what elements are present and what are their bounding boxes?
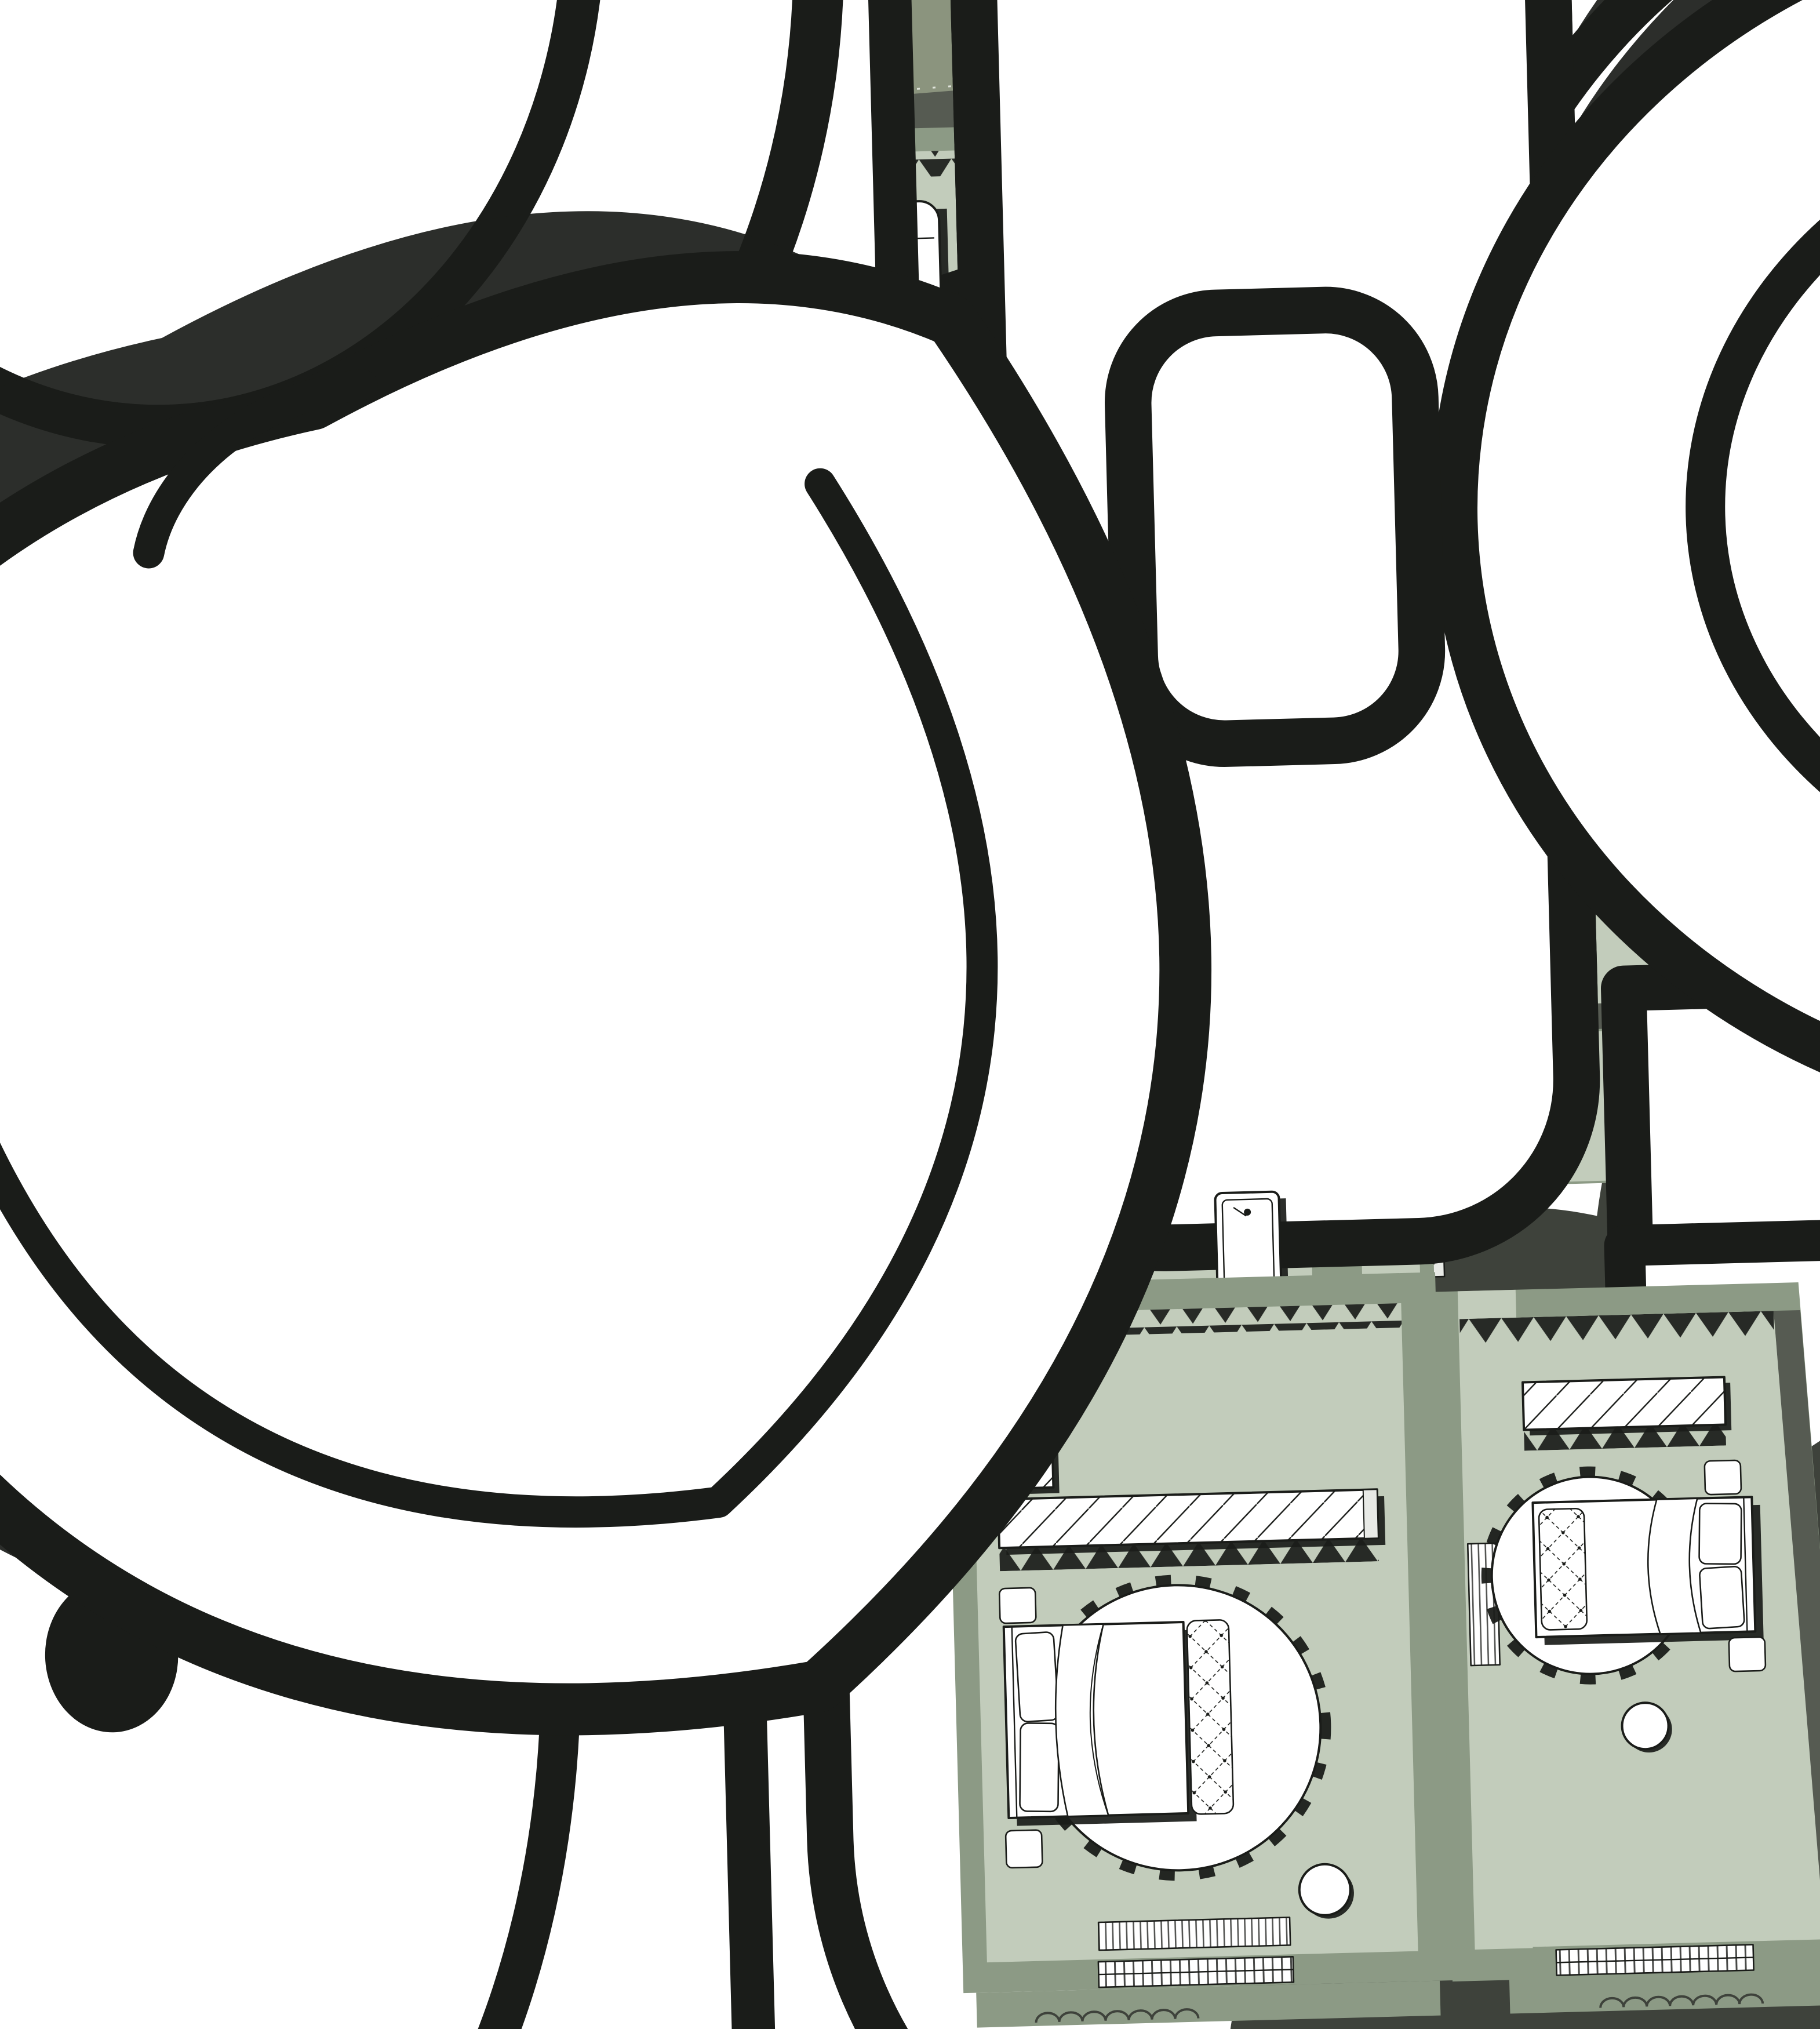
balcony-door [1098,1957,1294,1987]
pillow [1020,1723,1058,1812]
radiator [1098,1917,1290,1950]
wardrobe-rail [1523,1377,1732,1450]
pillow [1699,1566,1745,1629]
quilted-bench [1539,1508,1587,1630]
nightstand [1705,1460,1741,1495]
balcony-door [1556,1944,1754,1975]
pillow [1699,1503,1741,1564]
double-bed [1004,1622,1197,1826]
floor-plan-canvas [0,0,1820,2029]
wardrobe-rail [998,1489,1386,1571]
pillow [1015,1632,1058,1722]
nightstand [999,1588,1036,1624]
floor-plan [0,0,1820,2029]
floor-plan-page [0,0,1820,2029]
nightstand [1729,1637,1766,1672]
nightstand [1006,1830,1043,1868]
quilted-bench [1187,1620,1234,1815]
